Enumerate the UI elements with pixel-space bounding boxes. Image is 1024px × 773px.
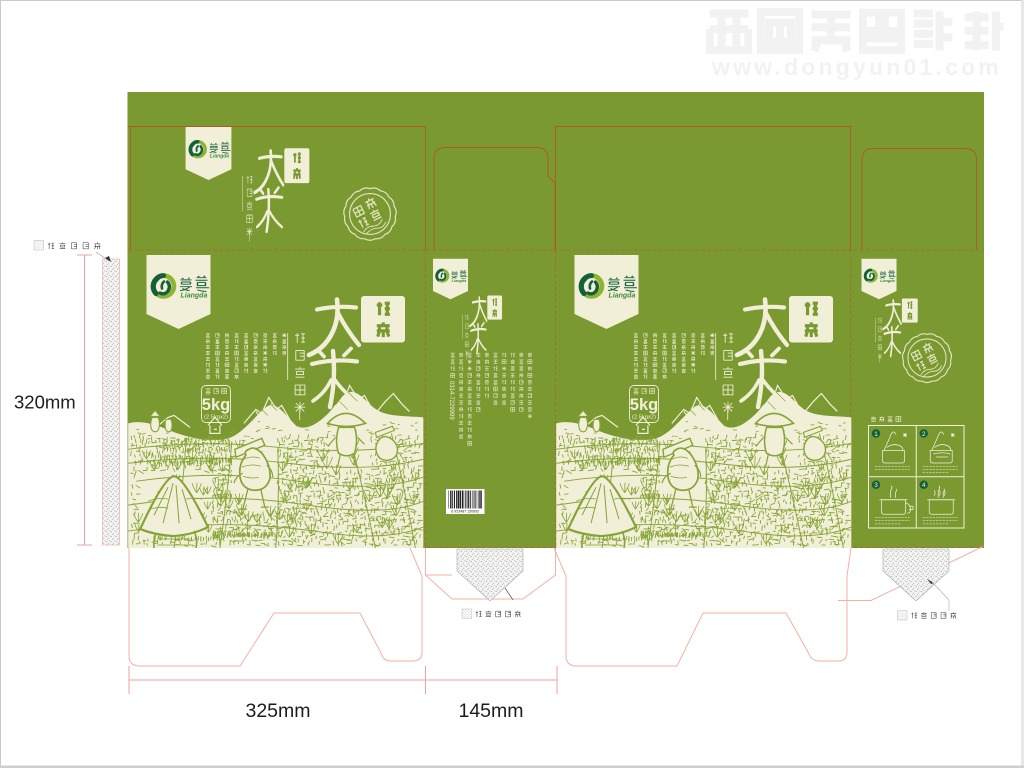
svg-text:www.dongyun01.com: www.dongyun01.com (711, 54, 1002, 80)
svg-text:2: 2 (922, 431, 926, 438)
svg-text:6 923487 150692: 6 923487 150692 (451, 509, 479, 513)
svg-text:320mm: 320mm (14, 392, 76, 413)
svg-text:145mm: 145mm (458, 700, 523, 722)
svg-text:5kg: 5kg (630, 396, 658, 414)
svg-text:(2.5kgx2): (2.5kgx2) (632, 415, 656, 421)
svg-text:1: 1 (874, 431, 878, 438)
svg-text:(2.5kgx2): (2.5kgx2) (204, 415, 228, 421)
svg-text:3: 3 (874, 482, 878, 489)
svg-text:5kg: 5kg (202, 396, 230, 414)
svg-text:4: 4 (922, 482, 926, 489)
svg-text:0314-7229999: 0314-7229999 (448, 381, 454, 420)
svg-text:325mm: 325mm (245, 700, 310, 722)
